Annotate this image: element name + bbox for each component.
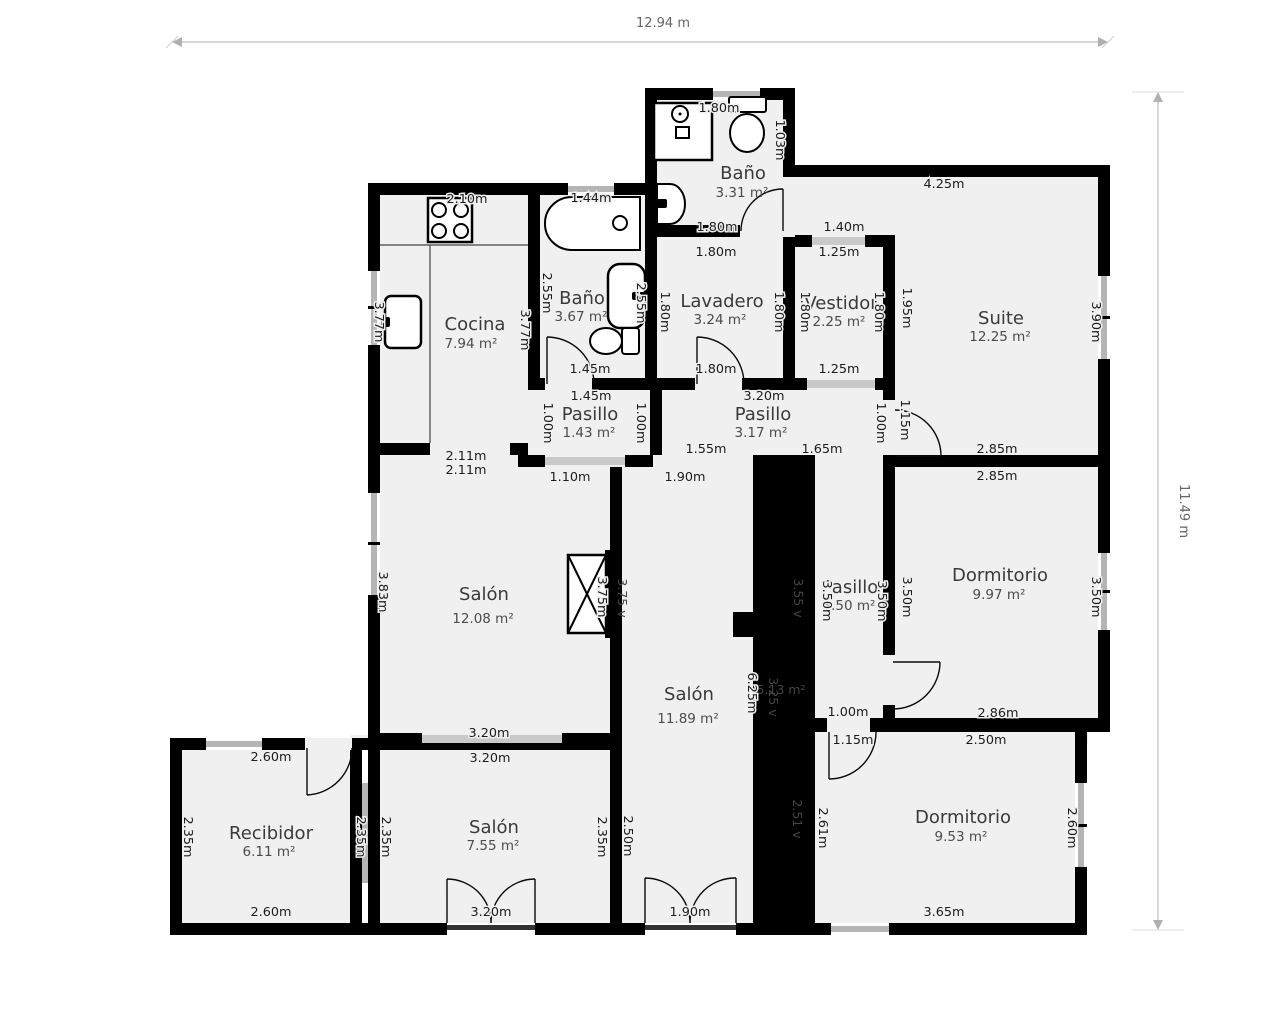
dim-label: 3.50m: [899, 577, 914, 618]
dim-label: 2.11m: [446, 463, 487, 478]
room-name-label: Baño: [720, 163, 766, 184]
dim-label: 3.50m: [874, 581, 889, 622]
room-name-label: Dormitorio: [915, 807, 1011, 828]
dim-label: 2.85m: [977, 469, 1018, 484]
dim-label: 3.75m: [594, 577, 609, 618]
dim-label: 3.77m: [371, 302, 386, 343]
room-area-label: 3.67 m²: [555, 309, 608, 325]
room-area-label: 9.97 m²: [973, 587, 1026, 603]
dim-label: 1.15m: [897, 400, 912, 441]
room-name-label: Dormitorio: [952, 565, 1048, 586]
dim-label: 2.61m: [815, 808, 830, 849]
dim-label: 1.95m: [899, 288, 914, 329]
dim-label: 6.25m: [744, 673, 759, 714]
room-area-label: 3.17 m²: [735, 425, 788, 441]
dim-label: 2.35m: [378, 817, 393, 858]
room-name-label: Suite: [978, 308, 1024, 329]
dim-label: 2.60m: [1064, 808, 1079, 849]
dim-label: 2.35m: [180, 817, 195, 858]
dim-label: 1.55m: [686, 442, 727, 457]
dim-label: 2.11m: [446, 449, 487, 464]
dim-label: 3.50m: [819, 581, 834, 622]
dim-label: 1.80m: [696, 245, 737, 260]
dim-label: 1.00m: [540, 403, 555, 444]
room-name-label: Lavadero: [680, 291, 763, 312]
dim-label: 2.60m: [251, 750, 292, 765]
room-area-label: 12.25 m²: [969, 329, 1031, 345]
opening-vestidor-top: [812, 237, 865, 245]
plan-width-label: 12.94 m: [636, 16, 690, 31]
dim-label: 1.80m: [696, 362, 737, 377]
dim-label: 2.85m: [977, 442, 1018, 457]
dim-label: 2.10m: [447, 192, 488, 207]
dim-label: 2.50m: [620, 816, 635, 857]
dim-label: 2.50m: [966, 733, 1007, 748]
kitchen-sink-icon: [381, 296, 421, 348]
room-name-label: Pasillo: [562, 404, 618, 425]
plan-height-label: 11.49 m: [1176, 484, 1191, 538]
opening-pasillo-salon: [545, 457, 625, 465]
shaft-dim-label: 3.55 v: [791, 578, 806, 618]
dim-label: 4.25m: [924, 177, 965, 192]
room-name-label: Cocina: [445, 314, 506, 335]
room-area-label: 11.89 m²: [657, 711, 719, 727]
shaft-dim-label: 2.51 v: [790, 799, 805, 839]
dim-label: 1.80m: [771, 292, 786, 333]
floor-plan-canvas: 12.94 m 11.49 m: [0, 0, 1280, 1024]
dim-label: 3.20m: [470, 751, 511, 766]
dim-label: 3.20m: [471, 905, 512, 920]
dim-label: 2.35m: [594, 817, 609, 858]
dim-label: 1.80m: [797, 292, 812, 333]
dim-label: 1.00m: [828, 705, 869, 720]
room-area-label: 6.11 m²: [243, 844, 296, 860]
floor-plan-page: 12.94 m 11.49 m: [0, 0, 1280, 1024]
dim-label: 1.80m: [697, 220, 738, 235]
room-area-label: 1.43 m²: [563, 425, 616, 441]
dim-label: 1.90m: [670, 905, 711, 920]
toilet-icon: [590, 328, 639, 354]
dim-label: 1.44m: [571, 191, 612, 206]
threshold-french-door-2: [645, 925, 736, 930]
room-area-label: 3.31 m²: [716, 185, 769, 201]
dim-label: 1.45m: [570, 362, 611, 377]
room-area-label: 12.08 m²: [452, 611, 514, 627]
room-area-label: 7.94 m²: [445, 336, 498, 352]
dim-label: 1.40m: [824, 220, 865, 235]
dim-label: 1.10m: [550, 470, 591, 485]
shaft-dim-label: 3.75 v: [615, 578, 630, 618]
dim-label: 3.20m: [469, 726, 510, 741]
room-name-label: Salón: [469, 817, 519, 838]
room-name-label: Salón: [459, 584, 509, 605]
room-name-label: Vestidor: [804, 293, 878, 314]
dim-label: 1.15m: [833, 733, 874, 748]
dim-label: 1.25m: [819, 362, 860, 377]
dim-label: 3.20m: [744, 389, 785, 404]
wc-sink-icon: [657, 184, 685, 224]
threshold-french-door-1: [447, 925, 535, 930]
opening-vestidor-bottom: [807, 380, 875, 388]
room-area-label: 7.55 m²: [467, 838, 520, 854]
dim-label: 1.00m: [873, 403, 888, 444]
dim-label: 3.65m: [924, 905, 965, 920]
dim-label: 1.80m: [699, 101, 740, 116]
dim-label: 3.90m: [1088, 302, 1103, 343]
dim-label: 1.03m: [772, 120, 787, 161]
room-name-label: Pasillo: [735, 404, 791, 425]
dim-label: 1.80m: [657, 292, 672, 333]
dim-label: 2.86m: [978, 706, 1019, 721]
dim-label: 1.65m: [802, 442, 843, 457]
dim-label: 2.55m: [633, 283, 648, 324]
room-name-label: Salón: [664, 684, 714, 705]
dim-label: 2.55m: [539, 273, 554, 314]
dim-label: 1.25m: [819, 245, 860, 260]
dim-label: 3.83m: [375, 572, 390, 613]
dim-label: 3.77m: [517, 310, 532, 351]
room-name-label: Recibidor: [229, 823, 314, 844]
room-area-label: 9.53 m²: [935, 829, 988, 845]
dim-label: 2.35m: [353, 817, 368, 858]
dim-label: 1.00m: [633, 403, 648, 444]
dim-label: 1.80m: [871, 292, 886, 333]
shaft-dim-label: 3.25 v: [766, 677, 781, 717]
dim-label: 3.50m: [1088, 577, 1103, 618]
dim-label: 1.90m: [665, 470, 706, 485]
room-area-label: 2.25 m²: [813, 314, 866, 330]
room-area-label: 3.24 m²: [694, 312, 747, 328]
room-name-label: Baño: [559, 288, 605, 309]
dim-label: 1.45m: [571, 389, 612, 404]
dim-label: 2.60m: [251, 905, 292, 920]
